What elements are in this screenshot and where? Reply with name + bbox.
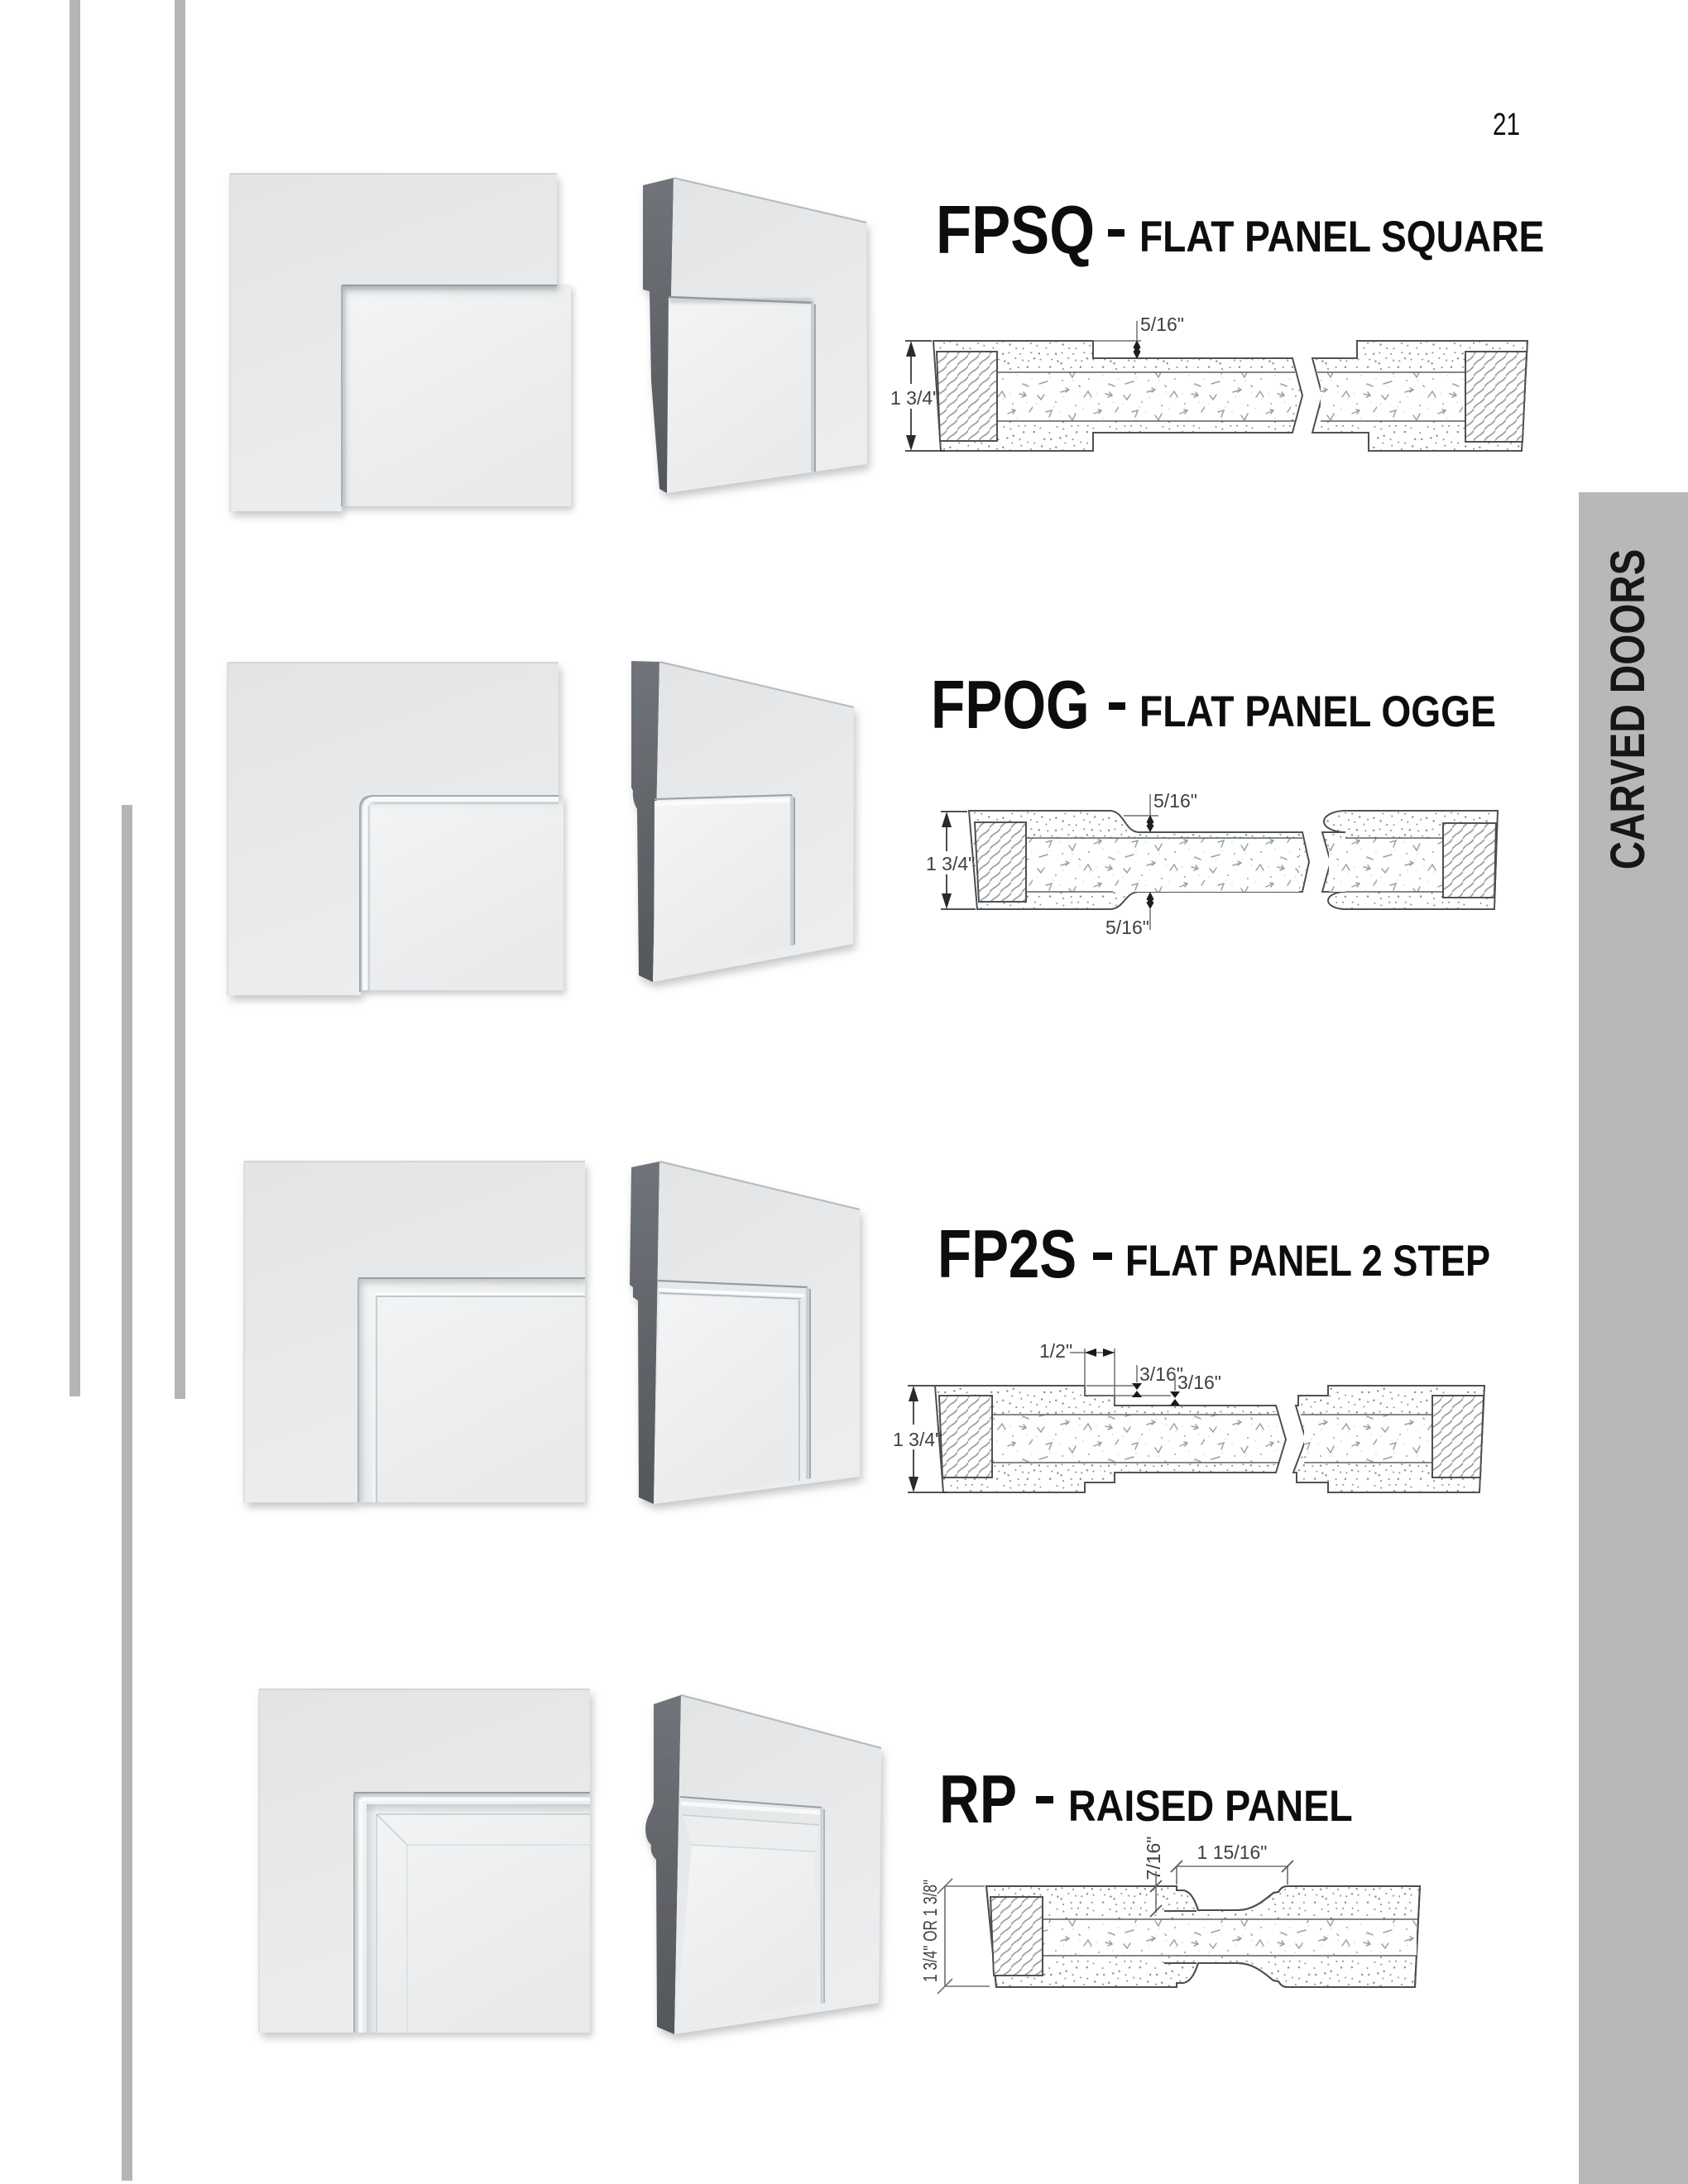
svg-text:1 3/4": 1 3/4" [926,853,975,874]
svg-text:1 3/4" OR 1 3/8": 1 3/4" OR 1 3/8" [919,1880,941,1982]
svg-text:5/16": 5/16" [1140,314,1184,335]
svg-text:1 3/4": 1 3/4" [893,1429,942,1450]
svg-text:5/16": 5/16" [1105,917,1149,938]
svg-text:1/2": 1/2" [1039,1340,1072,1362]
svg-text:3/16": 3/16" [1139,1363,1183,1385]
svg-text:5/16": 5/16" [1153,790,1197,812]
svg-text:3/16": 3/16" [1177,1372,1221,1393]
svg-text:7/16": 7/16" [1143,1837,1164,1880]
svg-text:1 15/16": 1 15/16" [1197,1842,1268,1863]
svg-text:1 3/4": 1 3/4" [890,387,939,409]
